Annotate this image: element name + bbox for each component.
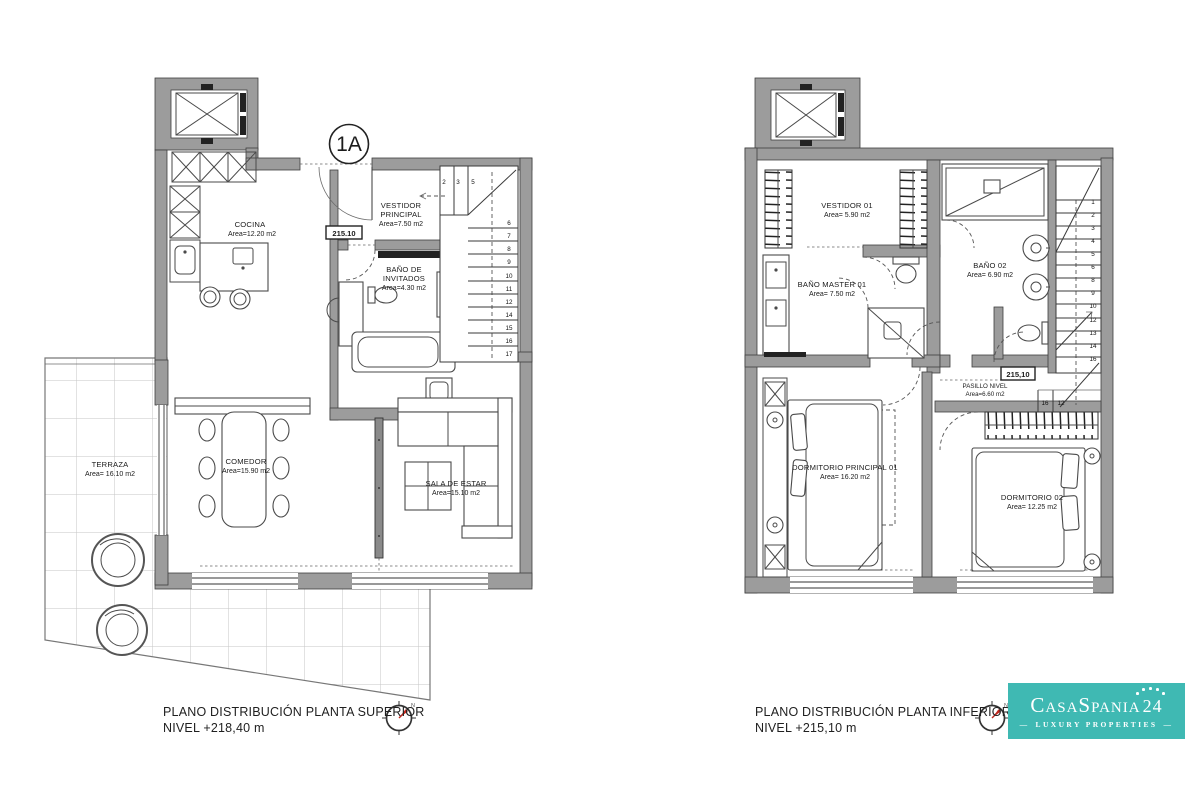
stair-step-number: 3 bbox=[1091, 225, 1095, 232]
vestidor-rail bbox=[378, 251, 440, 258]
elevator-superior bbox=[155, 78, 258, 150]
stair-step-number: 2 bbox=[1091, 212, 1095, 219]
room-area-vestidor-principal: Area=7.50 m2 bbox=[379, 221, 423, 228]
room-area-dorm-principal: Area= 16.20 m2 bbox=[820, 474, 870, 481]
logo-dash-left: — bbox=[1020, 720, 1030, 729]
caption-planta-inferior: PLANO DISTRIBUCIÓN PLANTA INFERIOR NIVEL… bbox=[755, 704, 1011, 736]
stair-step-number: 7 bbox=[507, 233, 511, 240]
room-label-vestidor-principal: VESTIDOR bbox=[381, 201, 422, 210]
stair-step-number: 6 bbox=[507, 220, 511, 227]
elevation-marker-superior: 215.10 bbox=[326, 226, 362, 239]
room-area-cocina: Area=12.20 m2 bbox=[228, 231, 276, 238]
stair-step-number: 6 bbox=[1091, 264, 1095, 271]
room-area-pasillo: Area=6.60 m2 bbox=[965, 391, 1005, 398]
caption-title: PLANO DISTRIBUCIÓN PLANTA INFERIOR bbox=[755, 704, 1011, 720]
caption-level: NIVEL +218,40 m bbox=[163, 720, 424, 736]
stair-step-number: 10 bbox=[1089, 303, 1097, 310]
elevator-inferior bbox=[755, 78, 860, 152]
svg-text:215.10: 215.10 bbox=[332, 229, 355, 238]
caption-level: NIVEL +215,10 m bbox=[755, 720, 1011, 736]
stair-step-number: 15 bbox=[505, 325, 513, 332]
terrace-chair bbox=[92, 534, 144, 586]
room-area-dorm02: Area= 12.25 m2 bbox=[1007, 504, 1057, 511]
room-label-dorm02: DORMITORIO 02 bbox=[1001, 493, 1063, 502]
stair-step-number: 14 bbox=[505, 312, 513, 319]
floorplan-sheet: 2 3 5 6 7 8 9 10 11 12 14 15 16 17 bbox=[0, 0, 1200, 800]
sparkle-icon bbox=[1149, 687, 1152, 690]
room-label-banyo-master: BAÑO MASTER 01 bbox=[798, 280, 867, 289]
sparkle-icon bbox=[1156, 688, 1159, 691]
window-south-4 bbox=[957, 577, 1093, 593]
banyo-master-fixtures bbox=[763, 255, 924, 358]
window-south-2 bbox=[352, 573, 488, 589]
stair-step-number: 12 bbox=[1089, 317, 1097, 324]
stair-step-number: 9 bbox=[507, 259, 511, 266]
stairs-inferior: 1 2 3 4 5 6 8 9 10 12 13 14 16 bbox=[1056, 166, 1101, 405]
stair-step-number: 17 bbox=[505, 351, 513, 358]
sparkle-icon bbox=[1142, 688, 1145, 691]
room-area-sala: Area=15.10 m2 bbox=[432, 490, 480, 497]
room-label-comedor: COMEDOR bbox=[225, 457, 266, 466]
room-label-vestidor-principal-2: PRINCIPAL bbox=[380, 210, 421, 219]
terrace-chair bbox=[97, 605, 147, 655]
stair-step-number: 11 bbox=[506, 286, 513, 293]
dormitorio-02-furniture bbox=[940, 412, 1100, 571]
stair-landing-number: 2 bbox=[442, 179, 446, 186]
elevation-marker-inferior: 215,10 bbox=[1001, 367, 1035, 380]
room-label-sala: SALA DE ESTAR bbox=[425, 479, 486, 488]
stair-step-number: 8 bbox=[1091, 277, 1095, 284]
logo-tagline: —LUXURY PROPERTIES— bbox=[1020, 720, 1174, 729]
stair-step-number: 5 bbox=[1091, 251, 1095, 258]
stair-landing-number: 12 bbox=[1057, 400, 1065, 407]
plan-superior: 2 3 5 6 7 8 9 10 11 12 14 15 16 17 bbox=[45, 78, 532, 700]
room-label-terraza: TERRAZA bbox=[92, 460, 130, 469]
sparkle-icon bbox=[1136, 692, 1139, 695]
stair-landing-number: 3 bbox=[456, 179, 460, 186]
stair-landing-number: 16 bbox=[1041, 400, 1049, 407]
room-area-vestidor01: Area= 5.90 m2 bbox=[824, 212, 870, 219]
room-area-banyo-invitados: Area=4.30 m2 bbox=[382, 285, 426, 292]
window-south-1 bbox=[192, 573, 298, 589]
stair-step-number: 8 bbox=[507, 246, 511, 253]
stair-step-number: 12 bbox=[505, 299, 513, 306]
room-area-banyo-master: Area= 7.50 m2 bbox=[809, 291, 855, 298]
room-label-banyo02: BAÑO 02 bbox=[973, 261, 1006, 270]
room-label-vestidor01: VESTIDOR 01 bbox=[821, 201, 873, 210]
svg-text:1A: 1A bbox=[336, 133, 362, 156]
kitchen-island bbox=[200, 243, 268, 309]
room-label-banyo-invitados-2: INVITADOS bbox=[383, 274, 425, 283]
room-label-cocina: COCINA bbox=[235, 220, 266, 229]
stair-landing-number: 5 bbox=[471, 179, 475, 186]
dormitorio-principal-furniture bbox=[763, 367, 920, 577]
sparkle-icon bbox=[1162, 692, 1165, 695]
stair-step-number: 4 bbox=[1091, 238, 1095, 245]
room-area-comedor: Area=15.90 m2 bbox=[222, 468, 270, 475]
logo-tagline-text: LUXURY PROPERTIES bbox=[1036, 720, 1158, 729]
stair-step-number: 14 bbox=[1089, 343, 1097, 350]
logo-brand-number: 24 bbox=[1143, 696, 1163, 716]
stair-step-number: 16 bbox=[1089, 356, 1097, 363]
plan-inferior: 1 2 3 4 5 6 8 9 10 12 13 14 16 16 12 bbox=[745, 78, 1113, 593]
unit-badge: 1A bbox=[330, 125, 369, 164]
tv-panel bbox=[375, 418, 383, 573]
caption-title: PLANO DISTRIBUCIÓN PLANTA SUPERIOR bbox=[163, 704, 424, 720]
stair-step-number: 1 bbox=[1091, 199, 1095, 206]
logo-brand-main: CasaSpania bbox=[1030, 693, 1140, 717]
room-label-pasillo: PASILLO NIVEL bbox=[963, 383, 1008, 390]
stair-step-number: 10 bbox=[505, 273, 513, 280]
casaspania-logo: CasaSpania24 —LUXURY PROPERTIES— bbox=[1008, 683, 1185, 739]
logo-dash-right: — bbox=[1163, 720, 1173, 729]
svg-text:215,10: 215,10 bbox=[1006, 370, 1029, 379]
window-west bbox=[157, 405, 166, 535]
room-area-terraza: Area= 16.10 m2 bbox=[85, 471, 135, 478]
floorplan-drawing: 2 3 5 6 7 8 9 10 11 12 14 15 16 17 bbox=[0, 0, 1200, 800]
stair-step-number: 9 bbox=[1091, 290, 1095, 297]
caption-planta-superior: PLANO DISTRIBUCIÓN PLANTA SUPERIOR NIVEL… bbox=[163, 704, 424, 736]
room-label-dorm-principal: DORMITORIO PRINCIPAL 01 bbox=[792, 463, 898, 472]
window-south-3 bbox=[790, 577, 913, 593]
room-area-banyo02: Area= 6.90 m2 bbox=[967, 272, 1013, 279]
stair-step-number: 13 bbox=[1089, 330, 1097, 337]
vestidor-door-arc bbox=[345, 250, 375, 280]
stair-step-number: 16 bbox=[505, 338, 513, 345]
room-label-banyo-invitados: BAÑO DE bbox=[386, 265, 422, 274]
logo-brand-text: CasaSpania24 bbox=[1030, 694, 1162, 717]
